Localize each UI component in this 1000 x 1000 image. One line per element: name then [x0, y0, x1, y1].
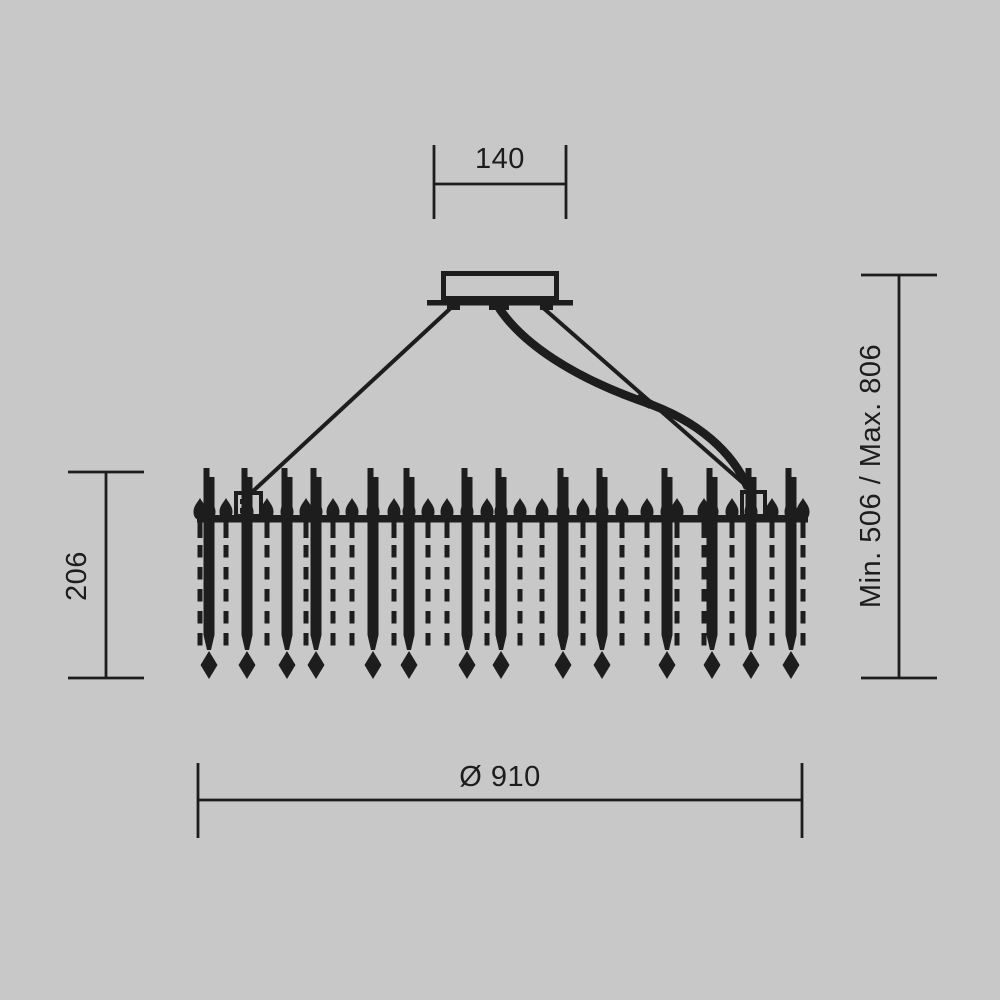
body-height-label: 206 — [61, 551, 93, 601]
right-height-dimension: Min. 506 / Max. 806 — [855, 275, 937, 678]
bulb — [797, 498, 810, 520]
rod-diamond-drop — [459, 651, 476, 679]
crystal-body — [194, 468, 810, 679]
crystal-rod — [282, 468, 293, 650]
bulb — [422, 498, 435, 520]
bulb — [726, 498, 739, 520]
crystal-rod — [242, 468, 253, 650]
canopy-box — [444, 274, 557, 299]
power-cable — [499, 308, 748, 488]
crystal-rod — [597, 468, 608, 650]
crystal-rod — [558, 468, 569, 650]
rod-diamond-drop — [201, 651, 218, 679]
rod-diamond-drop — [365, 651, 382, 679]
bulb — [346, 498, 359, 520]
diameter-label: Ø 910 — [459, 761, 541, 793]
crystal-rod — [462, 468, 473, 650]
rod-diamond-drop — [493, 651, 510, 679]
connector-screw — [240, 508, 245, 513]
rod-diamond-drop — [743, 651, 760, 679]
cable-curve — [499, 308, 748, 488]
crystal-rod — [746, 468, 757, 650]
crystal-rod — [786, 468, 797, 650]
bulb — [481, 498, 494, 520]
connector-screw — [240, 499, 245, 504]
crystal-rod — [707, 468, 718, 650]
crystal-rod — [662, 468, 673, 650]
rod-diamond-drop — [279, 651, 296, 679]
connector-screw — [746, 498, 751, 503]
crystal-rod — [404, 468, 415, 650]
rod-diamond-drop — [594, 651, 611, 679]
crystal-rod — [496, 468, 507, 650]
bulb — [388, 498, 401, 520]
bulb — [220, 498, 233, 520]
canopy — [427, 274, 573, 311]
bulb — [441, 498, 454, 520]
bulb — [616, 498, 629, 520]
bulb — [514, 498, 527, 520]
diagram-canvas: 140 206 Min. 506 / Max. 806 Ø 910 — [0, 0, 1000, 1000]
suspension-wires — [251, 306, 751, 493]
crystal-rod — [204, 468, 215, 650]
rod-diamond-drop — [401, 651, 418, 679]
bulb — [327, 498, 340, 520]
bulb — [536, 498, 549, 520]
left-suspension-wire — [251, 306, 453, 493]
rod-diamond-drop — [555, 651, 572, 679]
rod-diamond-drop — [783, 651, 800, 679]
rod-diamond-drop — [704, 651, 721, 679]
rod-diamond-drop — [239, 651, 256, 679]
crystal-rod — [311, 468, 322, 650]
bulb — [641, 498, 654, 520]
connector-screw — [746, 507, 751, 512]
bulb — [577, 498, 590, 520]
left-height-dimension: 206 — [61, 472, 144, 678]
crystal-rod — [368, 468, 379, 650]
rod-diamond-drop — [308, 651, 325, 679]
canopy-width-label: 140 — [475, 143, 525, 175]
rod-diamond-drop — [659, 651, 676, 679]
top-width-dimension: 140 — [434, 143, 566, 219]
bulb — [766, 498, 779, 520]
suspension-height-label: Min. 506 / Max. 806 — [855, 344, 887, 608]
chandelier-dimension-drawing: 140 206 Min. 506 / Max. 806 Ø 910 — [0, 0, 1000, 1000]
bottom-diameter-dimension: Ø 910 — [198, 761, 802, 838]
